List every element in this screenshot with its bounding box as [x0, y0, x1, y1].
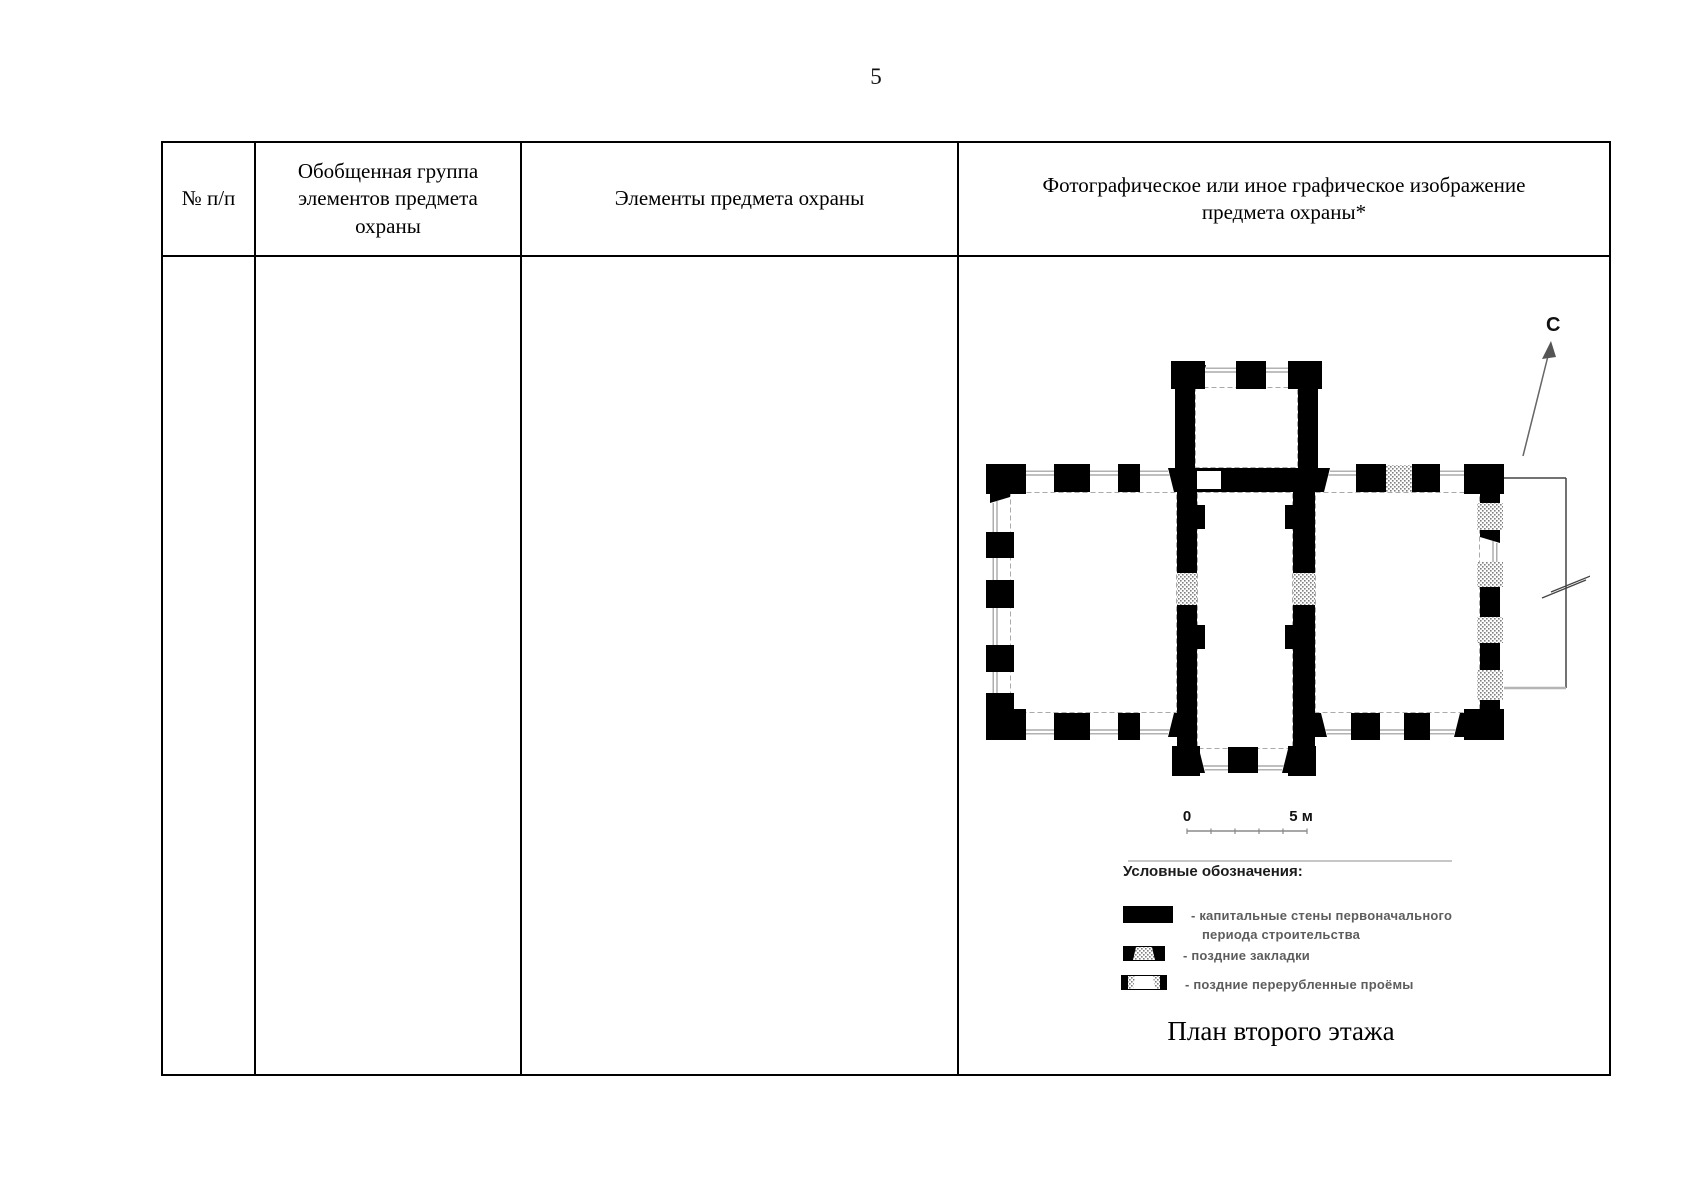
- legend-separator: [1128, 860, 1452, 862]
- legend-line: - поздние перерубленные проёмы: [1185, 975, 1414, 994]
- header-label-group: Обобщенная группа элементов предмета охр…: [274, 158, 502, 240]
- legend-title: Условные обозначения:: [1123, 863, 1303, 880]
- legend-item-late-openings: - поздние перерубленные проёмы: [1121, 975, 1414, 994]
- scale-zero-label: 0: [1183, 808, 1191, 825]
- legend-item-original-walls: - капитальные стены первоначального пери…: [1123, 906, 1452, 944]
- legend-swatch-late-openings-icon: [1121, 975, 1167, 990]
- header-label-image: Фотографическое или иное графическое изо…: [1039, 172, 1529, 227]
- header-cell-image: Фотографическое или иное графическое изо…: [959, 143, 1609, 257]
- legend-swatch-late-infills-icon: [1123, 946, 1165, 961]
- legend-item-late-infills: - поздние закладки: [1123, 946, 1310, 965]
- scale-bar: 0 5 м: [1183, 808, 1313, 834]
- body-cell-group: [256, 257, 522, 1074]
- legend-item-label: - поздние закладки: [1183, 946, 1310, 965]
- legend-item-label: - поздние перерубленные проёмы: [1185, 975, 1414, 994]
- legend-swatch-original-walls-icon: [1123, 906, 1173, 923]
- north-label: С: [1546, 314, 1560, 336]
- page-number: 5: [861, 64, 891, 90]
- legend-line: - поздние закладки: [1183, 946, 1310, 965]
- body-cell-number: [163, 257, 256, 1074]
- legend-item-label: - капитальные стены первоначального пери…: [1191, 906, 1452, 944]
- header-cell-group: Обобщенная группа элементов предмета охр…: [256, 143, 522, 257]
- floor-plan: С 0 5 м: [975, 290, 1590, 850]
- legend-line: - капитальные стены первоначального: [1191, 906, 1452, 925]
- header-label-number: № п/п: [182, 185, 236, 212]
- north-arrowhead: [1542, 341, 1556, 359]
- north-arrow: С: [1523, 314, 1560, 456]
- header-cell-elements: Элементы предмета охраны: [522, 143, 959, 257]
- header-cell-number: № п/п: [163, 143, 256, 257]
- plan-walls: [986, 361, 1504, 776]
- body-cell-elements: [522, 257, 959, 1074]
- scale-five-label: 5 м: [1289, 808, 1313, 825]
- document-page: 5 № п/п Обобщенная группа элементов пред…: [0, 0, 1697, 1200]
- figure-caption: План второго этажа: [1081, 1016, 1481, 1047]
- header-label-elements: Элементы предмета охраны: [615, 185, 865, 212]
- legend-line: периода строительства: [1191, 925, 1452, 944]
- dimension-bracket: [1504, 478, 1590, 688]
